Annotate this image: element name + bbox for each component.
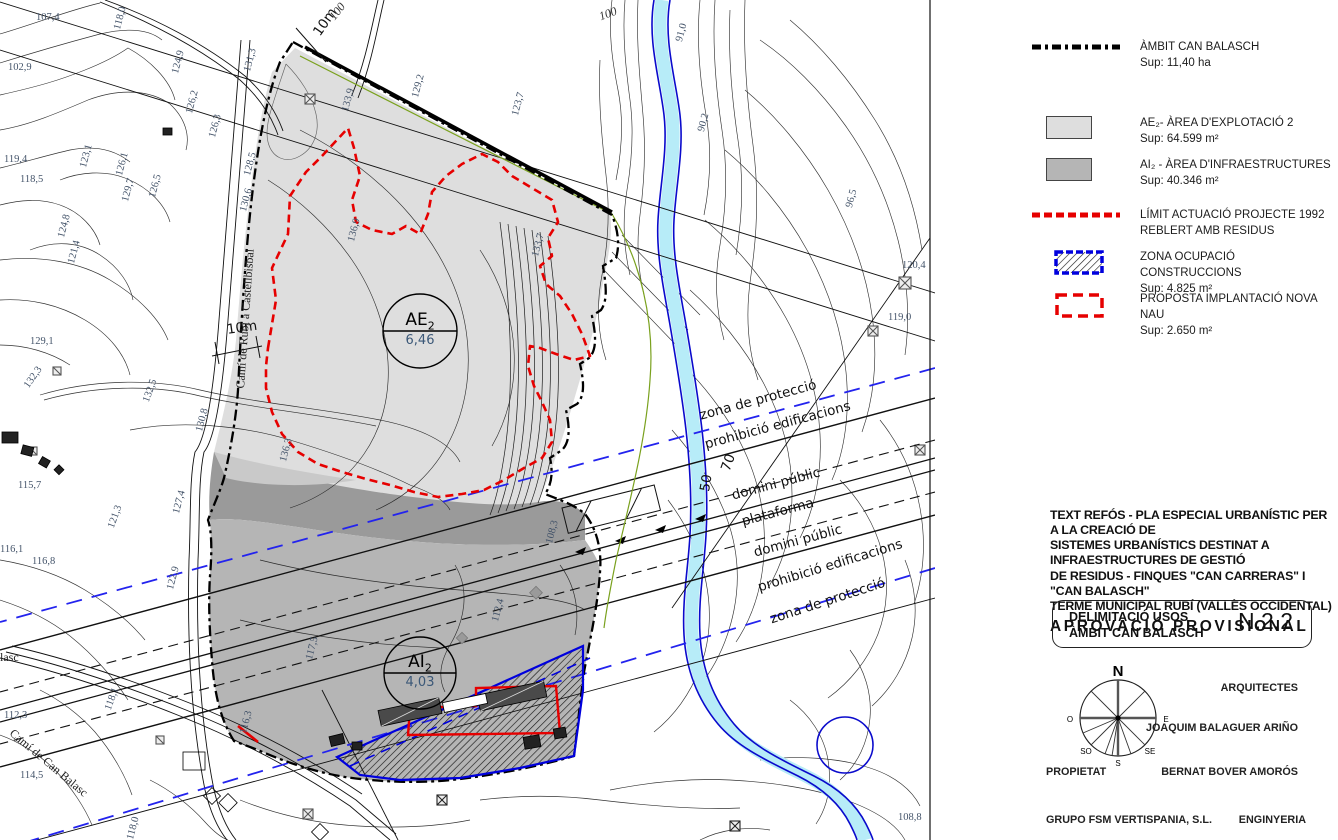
legend-symbol-zona-icon bbox=[1030, 250, 1122, 281]
legend-item-proposta-nau: PROPOSTA IMPLANTACIÓ NOVA NAUSup: 2.650 … bbox=[1030, 292, 1338, 340]
ae2-sub: 2 bbox=[428, 319, 435, 332]
architect-name: JOAQUIM BALAGUER ARIÑO bbox=[1146, 722, 1298, 734]
legend-item-text: PROPOSTA IMPLANTACIÓ NOVA NAUSup: 2.650 … bbox=[1140, 292, 1338, 340]
legend-panel: ÀMBIT CAN BALASCHSup: 11,40 ha AE₂- ÀREA… bbox=[1020, 0, 1338, 840]
sheet-number-box: DELIMITACIÓ USOSÀMBIT CAN BALASCH N.2.2 bbox=[1052, 600, 1312, 648]
ae2-value: 6,46 bbox=[386, 333, 454, 348]
legend-symbol-ambit-icon bbox=[1030, 40, 1122, 59]
legend-symbol-ae2-icon bbox=[1030, 116, 1122, 139]
title-line: SISTEMES URBANÍSTICS DESTINAT A INFRAEST… bbox=[1050, 538, 1332, 568]
legend-item-ae2: AE₂- ÀREA D'EXPLOTACIÓ 2Sup: 64.599 m² bbox=[1030, 116, 1293, 148]
ai2-area-label: AI2 4,03 bbox=[386, 652, 454, 690]
ae2-code: AE bbox=[405, 310, 427, 330]
sheet-number: N.2.2 bbox=[1238, 608, 1293, 635]
compass-rose-icon: N O E SO SE S bbox=[1056, 662, 1186, 772]
legend-item-zona-ocupacio: ZONA OCUPACIÓ CONSTRUCCIONSSup: 4.825 m² bbox=[1030, 250, 1338, 298]
legend-item-ai2: AI₂ - ÀREA D'INFRAESTRUCTURESSup: 40.346… bbox=[1030, 158, 1331, 190]
compass-o: O bbox=[1067, 715, 1073, 724]
ae2-area-label: AE2 6,46 bbox=[386, 310, 454, 348]
title-line: DE RESIDUS - FINQUES "CAN CARRERAS" I "C… bbox=[1050, 569, 1332, 599]
legend-item-text: LÍMIT ACTUACIÓ PROJECTE 1992REBLERT AMB … bbox=[1140, 208, 1324, 240]
legend-item-ambit: ÀMBIT CAN BALASCHSup: 11,40 ha bbox=[1030, 40, 1259, 72]
plan-sheet: 107,4102,9118,0124,9131,3126,2126,3128,5… bbox=[0, 0, 1338, 840]
engineering-role-label: ENGINYERIA bbox=[1239, 814, 1306, 826]
legend-item-text: ZONA OCUPACIÓ CONSTRUCCIONSSup: 4.825 m² bbox=[1140, 250, 1338, 298]
legend-item-text: AI₂ - ÀREA D'INFRAESTRUCTURESSup: 40.346… bbox=[1140, 158, 1331, 190]
compass-s: S bbox=[1115, 759, 1120, 768]
architects-role-label: ARQUITECTES bbox=[1221, 682, 1298, 694]
title-line: TEXT REFÓS - PLA ESPECIAL URBANÍSTIC PER… bbox=[1050, 508, 1332, 538]
river bbox=[652, 0, 873, 840]
ai2-code: AI bbox=[408, 652, 425, 672]
ai2-sub: 2 bbox=[425, 661, 432, 674]
map-canvas bbox=[0, 0, 935, 840]
owner-name: BERNAT BOVER AMORÓS bbox=[1161, 766, 1298, 778]
company-name: GRUPO FSM VERTISPANIA, S.L. bbox=[1046, 814, 1212, 826]
compass-n: N bbox=[1113, 663, 1124, 680]
legend-symbol-proposta-icon bbox=[1030, 292, 1122, 325]
legend-item-limit1992: LÍMIT ACTUACIÓ PROJECTE 1992REBLERT AMB … bbox=[1030, 208, 1324, 240]
compass-se: SE bbox=[1145, 747, 1156, 756]
legend-symbol-ai2-icon bbox=[1030, 158, 1122, 181]
property-role-label: PROPIETAT bbox=[1046, 766, 1106, 778]
ai2-value: 4,03 bbox=[386, 675, 454, 690]
legend-item-text: AE₂- ÀREA D'EXPLOTACIÓ 2Sup: 64.599 m² bbox=[1140, 116, 1293, 148]
sheet-title: DELIMITACIÓ USOSÀMBIT CAN BALASCH bbox=[1069, 609, 1204, 642]
legend-item-text: ÀMBIT CAN BALASCHSup: 11,40 ha bbox=[1140, 40, 1259, 72]
compass-so: SO bbox=[1080, 747, 1092, 756]
legend-symbol-limit-icon bbox=[1030, 208, 1122, 227]
map-area: 107,4102,9118,0124,9131,3126,2126,3128,5… bbox=[0, 0, 935, 840]
